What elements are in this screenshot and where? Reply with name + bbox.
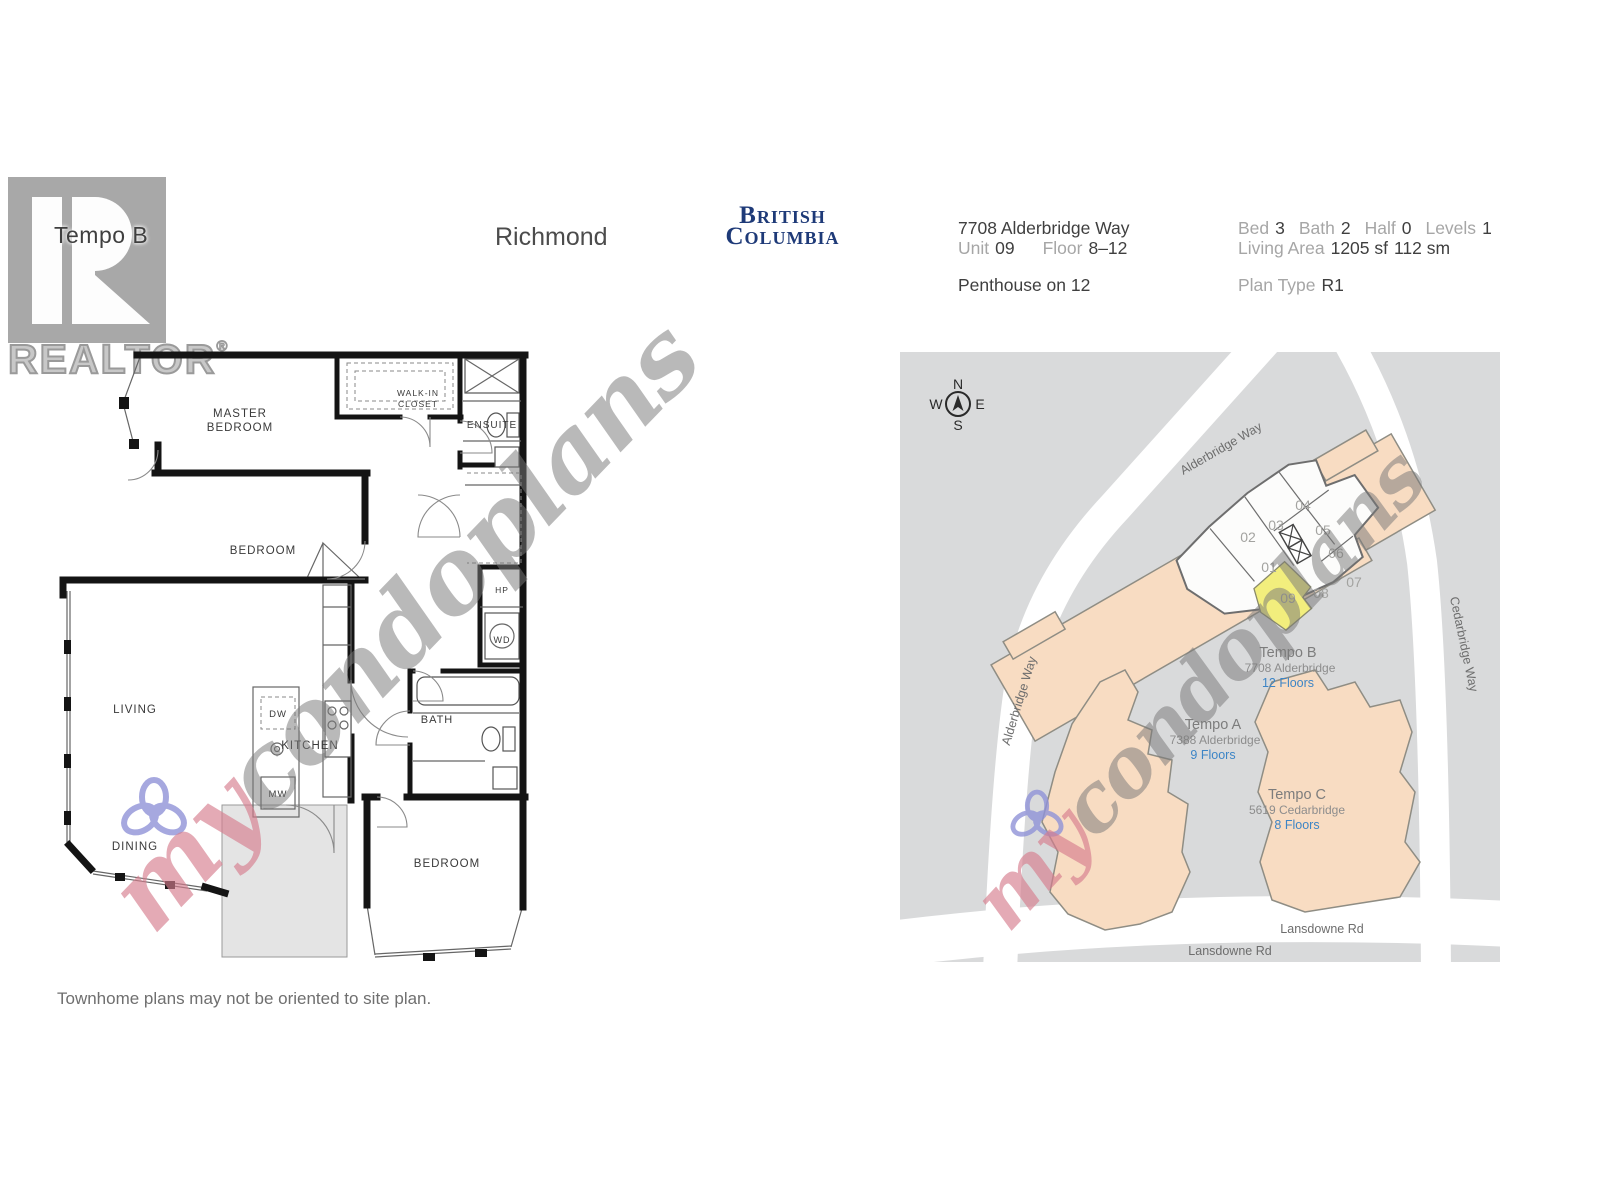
half-label: Half (1365, 218, 1396, 238)
plan-type-label: Plan Type (1238, 275, 1316, 295)
unit-label-08: 08 (1313, 585, 1329, 601)
building-floors-tempo-b: 12 Floors (1262, 676, 1314, 690)
room-label-mw: MW (269, 789, 288, 800)
room-label-kitchen: KITCHEN (281, 740, 338, 752)
room-label-master-1: MASTER (213, 408, 267, 420)
unit-label-06: 06 (1328, 545, 1344, 561)
floor-value: 8–12 (1088, 238, 1127, 258)
room-label-ensuite: ENSUITE (467, 420, 517, 431)
building-address-tempo-c: 5619 Cedarbridge (1249, 803, 1345, 817)
living-area-row: Living Area1205 sf112 sm (1238, 239, 1492, 258)
room-label-bedroom-bottom: BEDROOM (414, 858, 480, 870)
british-columbia-logo: British Columbia (695, 205, 870, 247)
room-label-walkin-2: CLOSET (398, 399, 438, 409)
building-label-tempo-a: Tempo A (1185, 717, 1242, 733)
half-value: 0 (1402, 218, 1412, 238)
building-floors-tempo-a: 9 Floors (1190, 748, 1235, 762)
building-floors-tempo-c: 8 Floors (1274, 818, 1319, 832)
levels-label: Levels (1425, 218, 1476, 238)
building-address-tempo-b: 7708 Alderbridge (1245, 661, 1336, 675)
bath-label: Bath (1299, 218, 1335, 238)
compass-s: S (953, 417, 962, 433)
plan-type-row: Plan TypeR1 (1238, 276, 1492, 295)
bed-value: 3 (1275, 218, 1285, 238)
patio-area (222, 805, 347, 957)
orientation-disclaimer: Townhome plans may not be oriented to si… (57, 989, 431, 1009)
property-details-left: 7708 Alderbridge Way Unit09Floor8–12 Pen… (958, 219, 1130, 296)
living-area-label: Living Area (1238, 238, 1325, 258)
unit-label-09: 09 (1280, 590, 1296, 606)
trillium-logo-map (1008, 788, 1066, 846)
penthouse-note: Penthouse on 12 (958, 276, 1130, 295)
room-label-dw: DW (269, 709, 287, 720)
bed-bath-row: Bed3Bath2Half0Levels1 (1238, 219, 1492, 238)
compass-w: W (929, 396, 943, 412)
unit-label-07: 07 (1346, 574, 1362, 590)
unit-floor-row: Unit09Floor8–12 (958, 239, 1130, 258)
living-area-sm: 112 sm (1394, 238, 1450, 258)
living-area-sf: 1205 sf (1331, 238, 1388, 258)
room-label-master-2: BEDROOM (207, 422, 273, 434)
bed-label: Bed (1238, 218, 1269, 238)
road-label-lansdowne-2: Lansdowne Rd (1188, 944, 1271, 958)
building-address-tempo-a: 7388 Alderbridge (1170, 733, 1261, 747)
building-label-tempo-c: Tempo C (1268, 787, 1326, 803)
plan-type-value: R1 (1322, 275, 1344, 295)
levels-value: 1 (1482, 218, 1492, 238)
unit-label-02: 02 (1240, 529, 1256, 545)
site-map: 02 03 04 05 06 07 01 08 09 Alderbridge W… (900, 352, 1500, 962)
room-label-living: LIVING (113, 704, 157, 716)
unit-label-04: 04 (1295, 497, 1311, 513)
room-label-walkin-1: WALK-IN (397, 388, 439, 398)
road-label-lansdowne-1: Lansdowne Rd (1280, 922, 1363, 936)
address: 7708 Alderbridge Way (958, 219, 1130, 238)
room-label-bedroom-mid: BEDROOM (230, 545, 296, 557)
city-label: Richmond (495, 223, 608, 252)
province-line2: Columbia (695, 226, 870, 247)
road-lansdowne (900, 919, 1500, 944)
property-details-right: Bed3Bath2Half0Levels1 Living Area1205 sf… (1238, 219, 1492, 296)
realtor-r-icon (8, 177, 166, 343)
bath-value: 2 (1341, 218, 1351, 238)
building-label-tempo-b: Tempo B (1259, 645, 1316, 661)
room-label-hp: HP (495, 585, 509, 595)
plan-title: Tempo B (54, 222, 148, 249)
unit-label-03: 03 (1268, 517, 1284, 533)
realtor-logo (8, 177, 166, 343)
unit-label: Unit (958, 238, 989, 258)
trillium-logo-plan (118, 775, 190, 847)
unit-label-01: 01 (1261, 559, 1277, 575)
compass-n: N (953, 376, 963, 392)
compass-e: E (975, 396, 984, 412)
unit-label-05: 05 (1315, 522, 1331, 538)
room-label-bath: BATH (421, 714, 454, 726)
floor-plan: MASTER BEDROOM WALK-IN CLOSET ENSUITE BE… (55, 345, 535, 967)
unit-value: 09 (995, 238, 1014, 258)
floor-label: Floor (1043, 238, 1083, 258)
room-label-wd: WD (494, 635, 511, 645)
